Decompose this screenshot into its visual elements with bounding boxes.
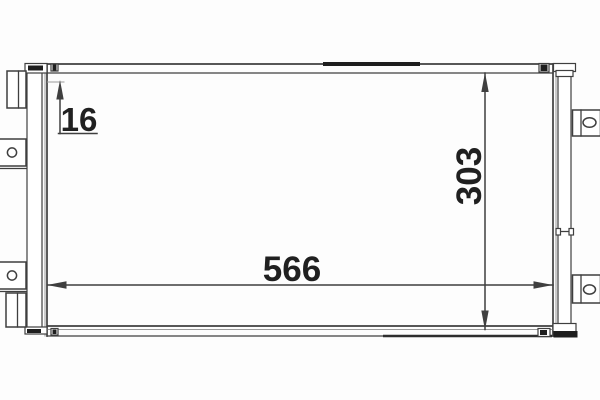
joint-nub-left xyxy=(556,229,561,236)
arrowhead-left-icon xyxy=(47,281,67,288)
joint-nub-right xyxy=(569,229,574,236)
bracket-plate xyxy=(6,293,26,327)
bottom-left-tab-fill xyxy=(53,330,57,335)
left-bracket-lower-hole xyxy=(0,262,26,292)
right-mounting-brackets xyxy=(573,110,600,303)
left-mounting-brackets xyxy=(0,71,26,327)
bolt-hole xyxy=(7,271,16,280)
left-bracket-bottom xyxy=(6,293,26,327)
arrowhead-right-icon xyxy=(534,281,554,288)
right-channel-plate xyxy=(558,66,571,332)
top-left-end-cap-fill xyxy=(28,66,43,71)
technical-drawing: 16 303 566 xyxy=(0,0,600,400)
bottom-left-end-cap-fill xyxy=(27,329,41,333)
left-bracket-upper-hole xyxy=(0,139,26,169)
bracket-plate xyxy=(7,71,26,108)
bottom-right-end-cap xyxy=(553,324,576,333)
slot-hole xyxy=(584,285,596,294)
dimension-width: 566 xyxy=(47,250,553,289)
arrowhead-up-icon xyxy=(481,73,488,93)
dimension-depth: 16 xyxy=(48,80,98,138)
top-right-end-cap-step xyxy=(556,71,573,77)
bottom-right-tab-fill xyxy=(540,330,547,335)
left-channel-plate xyxy=(27,66,42,332)
slot-hole xyxy=(583,118,596,128)
arrowhead-down-icon xyxy=(481,311,488,331)
dimension-height-label: 303 xyxy=(450,147,489,205)
dimension-height: 303 xyxy=(450,73,489,331)
top-left-tab-fill xyxy=(53,65,57,71)
left-bracket-top xyxy=(7,71,26,108)
bottom-header-tank xyxy=(25,324,578,338)
right-side-channel xyxy=(553,64,574,336)
right-bracket-lower xyxy=(573,275,600,303)
dimension-depth-label: 16 xyxy=(61,101,98,138)
drawing-canvas: 16 303 566 xyxy=(0,0,600,400)
top-header-tank xyxy=(25,64,576,77)
bolt-hole xyxy=(7,148,16,157)
top-right-tab-fill xyxy=(541,65,548,72)
dimension-width-label: 566 xyxy=(263,250,321,289)
left-side-channel xyxy=(27,64,47,336)
right-bracket-upper xyxy=(573,110,600,136)
bottom-right-end-cap-fill xyxy=(554,331,578,338)
